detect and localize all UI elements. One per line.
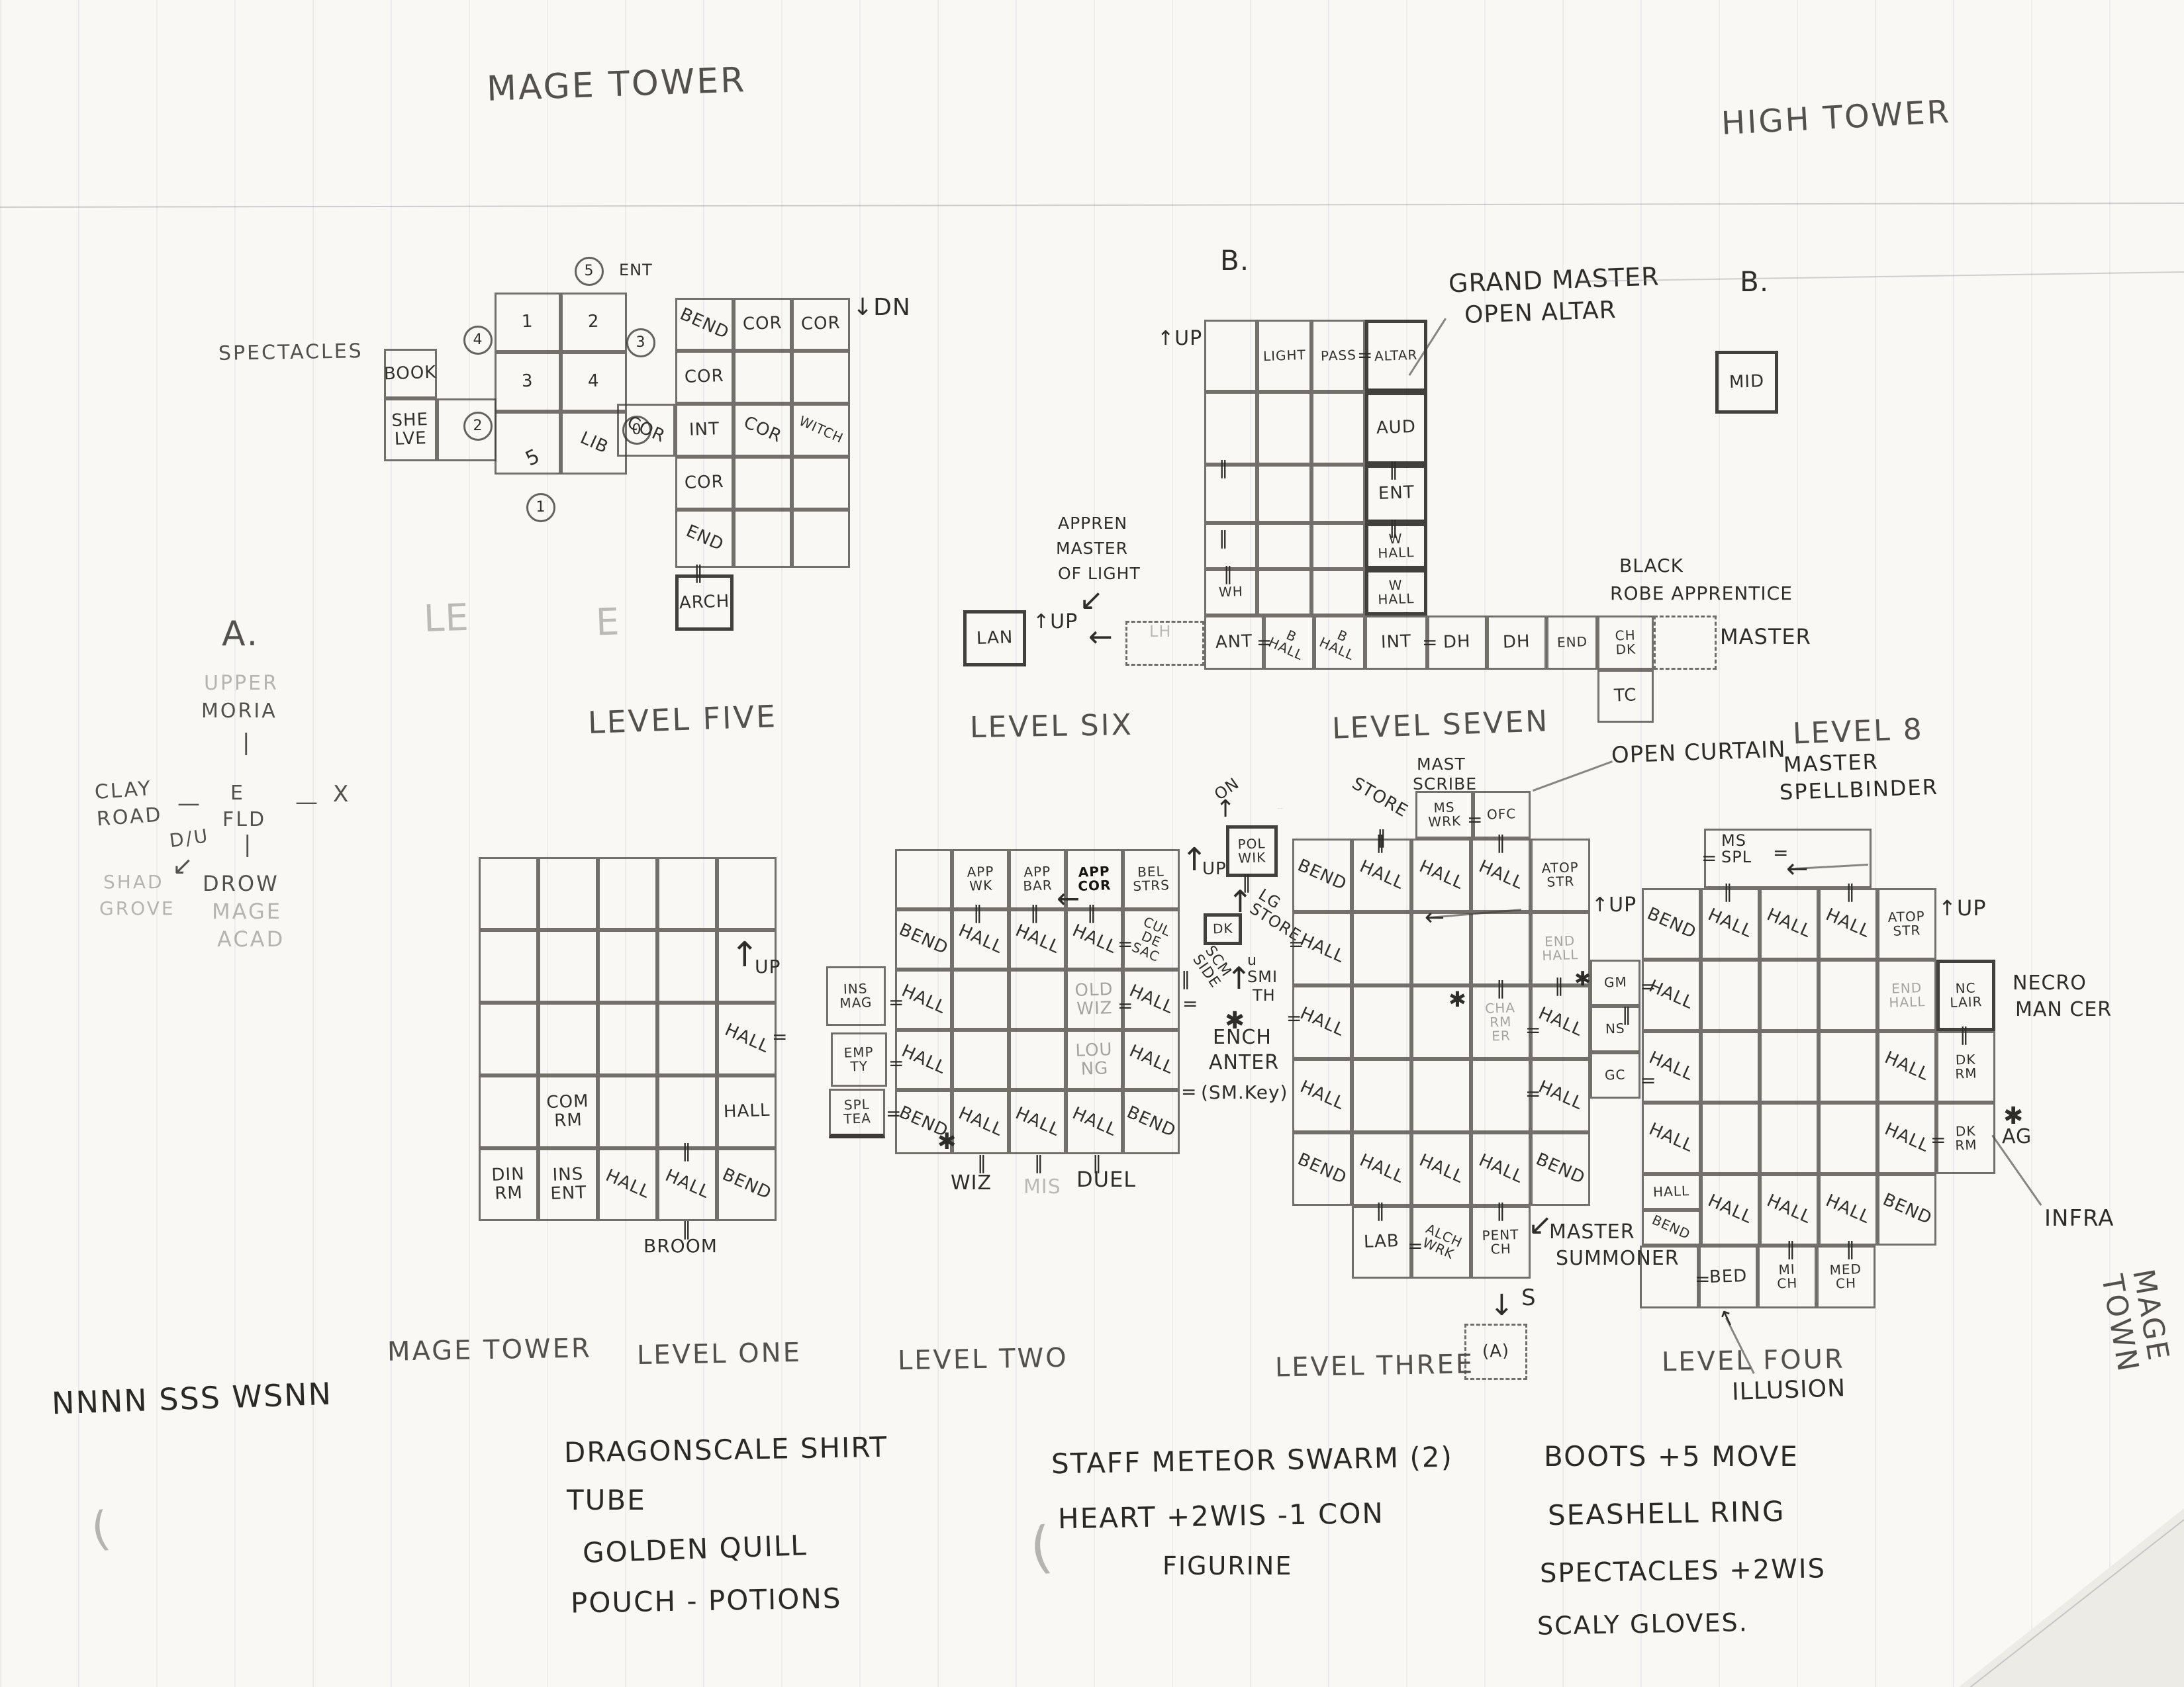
room-level-four-bend: BEND	[1642, 1210, 1701, 1246]
door-mark-icon-blank: =	[1117, 935, 1133, 954]
room-level-five-cor: COR	[675, 351, 734, 404]
room-level-two-bel-strs: BEL STRS	[1123, 849, 1180, 909]
room-level-six-blank	[1311, 523, 1365, 569]
room-level-three-hall: HALL	[1471, 1132, 1531, 1206]
room-level-four-end-hall: END HALL	[1877, 960, 1936, 1031]
room-level-four-hall: HALL	[1819, 1174, 1877, 1246]
treasure-item-dragonscale-shirt: DRAGONSCALE SHIRT	[564, 1432, 888, 1469]
map-annotation-wiz: WIZ	[951, 1173, 992, 1194]
room-label: LIB	[577, 429, 610, 457]
room-level-three-hall: HALL	[1411, 1132, 1471, 1206]
map-annotation-u: u	[1247, 953, 1257, 968]
room-label: MID	[1729, 373, 1764, 392]
room-level-five-blank	[734, 510, 792, 568]
room-label: HALL	[1882, 1120, 1932, 1156]
room-label: HALL	[1823, 906, 1873, 942]
door-mark-icon-blank: =	[888, 1054, 904, 1073]
room-label: BEND	[1644, 905, 1698, 943]
treasure-item-staff-meteor-swarm-2: STAFF METEOR SWARM (2)	[1051, 1442, 1454, 1480]
map-annotation-master: MASTER	[1720, 626, 1811, 649]
map-annotation-ench: ENCH	[1213, 1027, 1272, 1048]
treasure-item-seashell-ring: SEASHELL RING	[1548, 1496, 1785, 1531]
room-level-four-hall: HALL	[1760, 1174, 1819, 1246]
handwritten-title-road: ROAD	[96, 804, 164, 831]
door-mark-icon-blank: =	[1407, 1236, 1423, 1255]
room-label: LAB	[1364, 1232, 1400, 1252]
door-mark-icon-blank: =	[1525, 1084, 1541, 1103]
room-level-one-din-rm: DIN RM	[479, 1148, 538, 1221]
arrow-icon-blank: ↓	[1490, 1291, 1515, 1321]
room-label: (A)	[1482, 1342, 1509, 1361]
room-level-one-blank	[538, 1003, 598, 1075]
handwritten-title-blank: —	[295, 790, 320, 815]
room-level-six-blank	[1311, 465, 1365, 523]
room-label: W HALL	[1378, 578, 1415, 607]
room-level-seven-dh: DH	[1487, 616, 1546, 670]
room-level-four-blank	[1701, 1103, 1760, 1174]
room-label: HALL	[662, 1167, 712, 1203]
room-level-one-blank	[538, 930, 598, 1003]
arrow-icon-blank: ↙	[1079, 585, 1104, 616]
room-label: COR	[741, 414, 784, 446]
map-annotation-appren: APPREN	[1058, 515, 1127, 532]
room-label: BEND	[1295, 856, 1349, 894]
map-annotation-0: 0	[622, 416, 651, 445]
room-label: HALL	[955, 922, 1005, 958]
room-label: LOU NG	[1075, 1041, 1114, 1079]
room-label: HALL	[1476, 1152, 1525, 1187]
room-level-seven-int: INT	[1365, 616, 1427, 670]
room-label: HALL	[722, 1021, 771, 1057]
room-label: BEND	[1533, 1150, 1588, 1188]
room-level-five-blank	[792, 457, 850, 510]
map-annotation-4: 4	[463, 326, 493, 355]
room-level-four-blank	[1760, 1103, 1819, 1174]
handwritten-title-blank: |	[242, 731, 252, 755]
room-level-four-hall: HALL	[1760, 888, 1819, 960]
room-level-five-int: INT	[675, 404, 734, 457]
room-label: DIN RM	[491, 1166, 526, 1204]
room-label: HALL	[1416, 1152, 1466, 1187]
map-annotation-lh: LH	[1149, 623, 1171, 640]
star-mark-icon-blank: ✱	[1574, 969, 1591, 990]
room-level-one-blank	[657, 1075, 717, 1148]
room-label: ANT	[1215, 633, 1253, 652]
handwritten-title-level-one: LEVEL ONE	[637, 1338, 802, 1370]
room-label: HALL	[1012, 922, 1062, 958]
map-annotation-illusion: ILLUSION	[1731, 1376, 1846, 1405]
room-label: HALL	[1069, 1105, 1119, 1140]
room-level-four-bend: BEND	[1642, 888, 1701, 960]
door-mark-icon-blank: =	[1257, 633, 1272, 652]
room-level-three-hall: HALL	[1411, 839, 1471, 912]
room-label: WH	[1218, 585, 1243, 600]
room-level-three-bend: BEND	[1531, 1132, 1590, 1206]
door-mark-icon-blank: ‖	[1376, 1201, 1386, 1220]
room-label: APP BAR	[1022, 865, 1053, 894]
room-level-one-blank	[657, 857, 717, 930]
door-mark-icon-blank: ‖	[682, 1141, 692, 1160]
room-label: HALL	[723, 1102, 770, 1122]
room-level-four-hall: HALL	[1877, 1103, 1936, 1174]
room-label: HALL	[1646, 1120, 1696, 1156]
door-mark-icon-blank: =	[1117, 996, 1133, 1015]
room-label: DK RM	[1954, 1124, 1977, 1153]
room-label: HALL	[955, 1105, 1005, 1140]
handwritten-title-spellbinder: SPELLBINDER	[1779, 776, 1938, 805]
room-label: HALL	[1535, 1005, 1585, 1040]
handwritten-title-acad: ACAD	[217, 928, 285, 951]
map-annotation-b: B.	[1220, 246, 1249, 275]
handwritten-title-grove: GROVE	[99, 899, 175, 919]
room-label: 4	[588, 373, 600, 391]
arrow-icon-blank: ↙	[172, 852, 195, 880]
room-label: INS MAG	[839, 981, 873, 1011]
room-label: HALL	[1705, 1192, 1755, 1228]
handwritten-title-upper: UPPER	[204, 672, 279, 694]
door-mark-icon-blank: ‖	[977, 1153, 987, 1172]
room-level-one-blank	[598, 1003, 657, 1075]
room-level-four-nc-lair: NC LAIR	[1936, 960, 1995, 1031]
room-level-two-bend: BEND	[895, 909, 952, 970]
room-label: LIGHT	[1262, 348, 1306, 363]
room-label: DH	[1503, 633, 1531, 653]
door-mark-icon-blank: =	[1640, 1071, 1656, 1090]
door-mark-icon-blank: ‖	[1219, 458, 1229, 477]
room-label: 3	[522, 373, 534, 391]
room-level-two-hall: HALL	[952, 1090, 1009, 1154]
arrow-icon-up: ↑UP	[1033, 612, 1078, 633]
room-level-seven-end: END	[1546, 616, 1597, 670]
room-label: HALL	[1297, 1078, 1347, 1114]
room-level-one-blank	[538, 857, 598, 930]
room-level-one-blank	[479, 1003, 538, 1075]
room-level-three-hall: HALL	[1292, 912, 1352, 985]
room-level-four-atop-str: ATOP STR	[1877, 888, 1936, 960]
star-mark-icon-blank: ✱	[937, 1130, 957, 1154]
room-label: ALCH WRK	[1418, 1222, 1464, 1263]
paper-rule-line	[1579, 271, 2184, 282]
room-level-two-lou-ng: LOU NG	[1066, 1030, 1123, 1090]
room-level-six-blank	[1257, 523, 1311, 569]
room-label: APP COR	[1077, 864, 1112, 893]
room-label: HALL	[1705, 906, 1755, 942]
room-level-six-blank	[1257, 465, 1311, 523]
room-label: DK	[1212, 922, 1233, 936]
room-level-five-blank	[792, 351, 850, 404]
handwritten-title-moria: MORIA	[201, 700, 277, 722]
room-label: GM	[1603, 976, 1627, 990]
room-label: DK RM	[1954, 1052, 1977, 1081]
handwritten-title-mage-tower: MAGE TOWER	[486, 62, 747, 109]
room-label: HALL	[1356, 1152, 1406, 1187]
room-level-four-bend: BEND	[1877, 1174, 1936, 1246]
room-level-four-hall: HALL	[1877, 1031, 1936, 1103]
map-annotation-open-curtain: OPEN CURTAIN	[1611, 738, 1786, 768]
room-level-one-ins-ent: INS ENT	[538, 1148, 598, 1221]
door-mark-icon-blank: =	[886, 1104, 902, 1123]
room-label: PASS	[1320, 348, 1356, 363]
room-label: BEND	[677, 306, 732, 343]
room-label: DH	[1443, 633, 1472, 653]
room-level-one-blank	[479, 930, 538, 1003]
room-level-one-bend: BEND	[717, 1148, 777, 1221]
room-level-four-gm: GM	[1590, 960, 1640, 1006]
room-label: CH DK	[1615, 628, 1636, 657]
handwritten-title-e: E	[230, 782, 245, 804]
treasure-item-scaly-gloves: SCALY GLOVES.	[1537, 1609, 1748, 1640]
room-label: HALL	[1069, 922, 1119, 958]
room-level-five-4: 4	[561, 352, 627, 412]
room-label: INT	[689, 420, 720, 439]
connector-line	[1533, 760, 1613, 792]
arrow-icon-blank: ↑	[1215, 797, 1236, 822]
room-label: 2	[588, 313, 600, 332]
door-mark-icon-blank: =	[1701, 848, 1717, 868]
room-level-four-blank	[1701, 960, 1760, 1031]
arrow-icon-blank: ←	[1057, 884, 1080, 913]
room-level-six-light: LIGHT	[1257, 320, 1311, 392]
handwritten-title-fld: FLD	[222, 809, 266, 831]
map-annotation-1: 1	[526, 493, 555, 522]
map-annotation-duel: DUEL	[1076, 1169, 1136, 1191]
room-label: HALL	[1297, 931, 1347, 967]
room-level-two-app-wk: APP WK	[952, 849, 1009, 909]
room-level-seven-tc: TC	[1597, 670, 1654, 723]
handwritten-title-master: MASTER	[1783, 751, 1879, 777]
room-label: HALL	[1012, 1105, 1062, 1140]
map-annotation-3: 3	[626, 328, 655, 357]
room-label: INT	[1381, 633, 1412, 652]
treasure-item-golden-quill: GOLDEN QUILL	[582, 1530, 808, 1569]
room-level-one-hall: HALL	[717, 1075, 777, 1148]
room-level-three-blank	[1352, 912, 1411, 985]
handwritten-title-high-tower: HIGH TOWER	[1721, 95, 1952, 142]
room-label: HALL	[1126, 1042, 1176, 1078]
map-annotation-up: UP	[755, 957, 781, 976]
room-level-seven-b-hall: B HALL	[1314, 616, 1365, 670]
room-level-five-end: END	[675, 510, 734, 568]
door-mark-icon-blank: ‖	[1496, 1201, 1506, 1220]
handwritten-title-level-8: LEVEL 8	[1792, 714, 1924, 751]
room-label: POL WIK	[1237, 837, 1266, 866]
door-mark-icon-blank: =	[1930, 1130, 1946, 1150]
room-level-five-cor: COR	[792, 298, 850, 351]
map-annotation-infra: INFRA	[2044, 1207, 2114, 1231]
room-level-two-blank	[952, 1030, 1009, 1090]
map-annotation-e: E	[595, 603, 620, 643]
room-label: SPL TEA	[843, 1098, 871, 1127]
handwritten-title-blank: (	[1027, 1516, 1057, 1579]
room-level-three-blank	[1411, 1059, 1471, 1132]
room-level-seven-blank	[1654, 616, 1717, 670]
map-annotation-master: MASTER	[1056, 540, 1128, 557]
treasure-item-spectacles-2wis: SPECTACLES +2WIS	[1540, 1554, 1827, 1588]
handwritten-title-spectacles: SPECTACLES	[218, 340, 363, 365]
room-level-five-blank	[734, 351, 792, 404]
map-annotation-5: 5	[575, 257, 604, 286]
door-mark-icon-blank: ‖	[1034, 1153, 1044, 1172]
room-label: OFC	[1487, 807, 1517, 823]
room-label: LAN	[976, 629, 1013, 648]
room-label: BOOK	[384, 363, 437, 383]
room-level-three-bend: BEND	[1292, 1132, 1352, 1206]
room-level-four-gc: GC	[1590, 1052, 1640, 1099]
map-annotation-ent: ENT	[619, 262, 653, 279]
map-annotation-sm-key: (SM.Key)	[1201, 1083, 1288, 1102]
room-label: HALL	[1416, 858, 1466, 893]
door-mark-icon-blank: ‖	[1389, 518, 1399, 537]
door-mark-icon-blank: ‖	[694, 563, 704, 582]
map-annotation-mast: MAST	[1417, 756, 1466, 773]
room-level-four-blank	[1760, 1031, 1819, 1103]
room-level-six-altar: ALTAR	[1365, 320, 1427, 392]
door-mark-icon-blank: ‖	[1960, 1025, 1970, 1044]
room-label: B HALL	[1266, 622, 1311, 662]
room-label: COR	[743, 314, 783, 334]
handwritten-title-mage-tower: MAGE TOWER	[387, 1334, 592, 1366]
room-label: HALL	[1535, 1078, 1585, 1114]
door-mark-icon-blank: ‖	[1496, 833, 1506, 852]
arrow-icon-up: ↑UP	[1591, 895, 1637, 916]
room-label: MS WRK	[1427, 800, 1461, 829]
room-level-two-old-wiz: OLD WIZ	[1066, 970, 1123, 1030]
room-level-six-blank	[1257, 569, 1311, 616]
map-annotation-mis: MIS	[1023, 1177, 1061, 1198]
room-label: NC LAIR	[1949, 981, 1983, 1010]
door-mark-icon-blank: ‖	[1786, 1239, 1796, 1258]
door-mark-icon-blank: ‖	[1030, 903, 1040, 922]
room-level-four-blank	[1640, 1246, 1699, 1308]
door-mark-icon-blank: ‖	[1723, 882, 1733, 901]
room-label: ALTAR	[1374, 348, 1418, 363]
room-label: TC	[1614, 687, 1637, 706]
room-level-four-hall: HALL	[1642, 1031, 1701, 1103]
room-level-two-hall: HALL	[1009, 1090, 1066, 1154]
room-label: ARCH	[679, 592, 730, 612]
room-level-two-emp-ty: EMP TY	[831, 1032, 887, 1087]
room-level-three-bend: BEND	[1292, 839, 1352, 912]
room-label: HALL	[1882, 1049, 1932, 1085]
room-level-two-bend: BEND	[1123, 1090, 1180, 1154]
room-label: BEND	[1124, 1103, 1178, 1141]
room-level-one-hall: HALL	[598, 1148, 657, 1221]
door-mark-icon-blank: ‖	[1496, 978, 1506, 997]
map-annotation-store: STORE	[1349, 775, 1411, 821]
room-label: BEND	[1879, 1191, 1934, 1229]
room-level-two-blank	[1009, 970, 1066, 1030]
handwritten-title-drow: DROW	[203, 872, 279, 895]
room-label: BEL STRS	[1133, 864, 1170, 893]
door-mark-icon-blank: =	[1181, 1082, 1197, 1101]
room-level-six-blank	[1204, 320, 1257, 392]
room-level-three-blank	[1471, 1059, 1531, 1132]
door-mark-icon-blank: ‖	[1846, 882, 1856, 901]
map-annotation-ms-spl: MS SPL	[1721, 833, 1752, 866]
map-annotation-smi: SMI	[1247, 969, 1278, 985]
room-label: COR	[685, 473, 725, 493]
room-label: HALL	[602, 1167, 652, 1203]
map-annotation-master: MASTER	[1549, 1222, 1635, 1243]
door-mark-icon-blank: ‖	[1223, 564, 1233, 583]
map-annotation-black: BLACK	[1619, 556, 1684, 575]
room-level-five-cor: COR	[734, 404, 792, 457]
door-mark-icon-blank: =	[1640, 977, 1656, 996]
room-label: EMP TY	[843, 1045, 874, 1074]
room-level-one-com-rm: COM RM	[538, 1075, 598, 1148]
map-annotation-up: UP	[1202, 860, 1227, 878]
room-level-six-blank	[1257, 392, 1311, 465]
room-level-four-ns: NS	[1590, 1006, 1640, 1052]
handwritten-title-mage: MAGE	[212, 900, 282, 923]
room-level-six-w-hall: W HALL	[1365, 569, 1427, 616]
room-level-two-blank	[952, 970, 1009, 1030]
treasure-item-tube: TUBE	[567, 1485, 646, 1516]
handwritten-title-blank: —	[177, 792, 202, 816]
room-level-two-blank	[1009, 1030, 1066, 1090]
map-annotation-ag: AG	[2002, 1126, 2032, 1148]
arrow-icon-up: ↑UP	[1938, 897, 1987, 920]
handwritten-title-level-two: LEVEL TWO	[898, 1344, 1068, 1375]
room-level-five-arch: ARCH	[675, 574, 734, 631]
room-label: BEND	[1650, 1213, 1692, 1242]
room-label: END	[683, 522, 726, 555]
room-level-two-hall: HALL	[1066, 1090, 1123, 1154]
handwritten-title-blank: (	[88, 1502, 115, 1555]
room-level-five-blank	[734, 457, 792, 510]
door-mark-icon-blank: ‖	[1389, 459, 1399, 479]
room-level-one-blank	[479, 857, 538, 930]
room-level-two-hall: HALL	[1123, 1030, 1180, 1090]
paper-rule-line	[0, 203, 2184, 208]
handwritten-title-a: A.	[222, 616, 260, 653]
room-label: COM RM	[546, 1093, 590, 1130]
room-level-five-3: 3	[495, 352, 561, 412]
room-label: HALL	[1823, 1192, 1873, 1228]
map-annotation-man-cer: MAN CER	[2015, 999, 2112, 1021]
room-level-four-hall: HALL	[1701, 1174, 1760, 1246]
room-level-five-2: 2	[561, 293, 627, 352]
room-label: AUD	[1376, 418, 1417, 438]
room-level-three-ms-wrk: MS WRK	[1415, 791, 1473, 839]
room-label: B HALL	[1317, 622, 1362, 662]
room-label: ENT	[1378, 484, 1415, 503]
handwritten-title-level-six: LEVEL SIX	[970, 709, 1134, 745]
treasure-item-figurine: FIGURINE	[1163, 1553, 1292, 1580]
room-label: ATOP STR	[1888, 909, 1926, 938]
room-level-four-blank	[1819, 960, 1877, 1031]
handwritten-title-shad: SHAD	[103, 872, 164, 893]
map-annotation-broom: BROOM	[643, 1236, 718, 1255]
map-annotation-s: S	[1521, 1287, 1537, 1310]
room-level-five-book: BOOK	[384, 349, 437, 398]
room-level-one-blank	[479, 1075, 538, 1148]
room-level-three-blank	[1352, 985, 1411, 1059]
room-level-one-blank	[657, 1003, 717, 1075]
arrow-icon-up: ↑UP	[1157, 328, 1202, 349]
room-level-three-blank	[1471, 912, 1531, 985]
room-label: END HALL	[1888, 981, 1925, 1010]
room-label: HALL	[1764, 906, 1814, 942]
door-mark-icon-blank: ‖	[1219, 528, 1229, 547]
door-mark-icon-blank: =	[888, 993, 904, 1012]
door-mark-icon-blank: ‖	[1181, 969, 1191, 988]
room-high-tower-mid: MID	[1715, 351, 1778, 414]
scanned-map-page: 1234LIBBOOKSHE LVEBENDCORCORCORCORINTCOR…	[0, 0, 2184, 1687]
door-mark-icon-blank: ‖	[1846, 1239, 1856, 1258]
map-annotation-scribe: SCRIBE	[1413, 776, 1477, 793]
handwritten-title-level-seven: LEVEL SEVEN	[1331, 706, 1550, 745]
